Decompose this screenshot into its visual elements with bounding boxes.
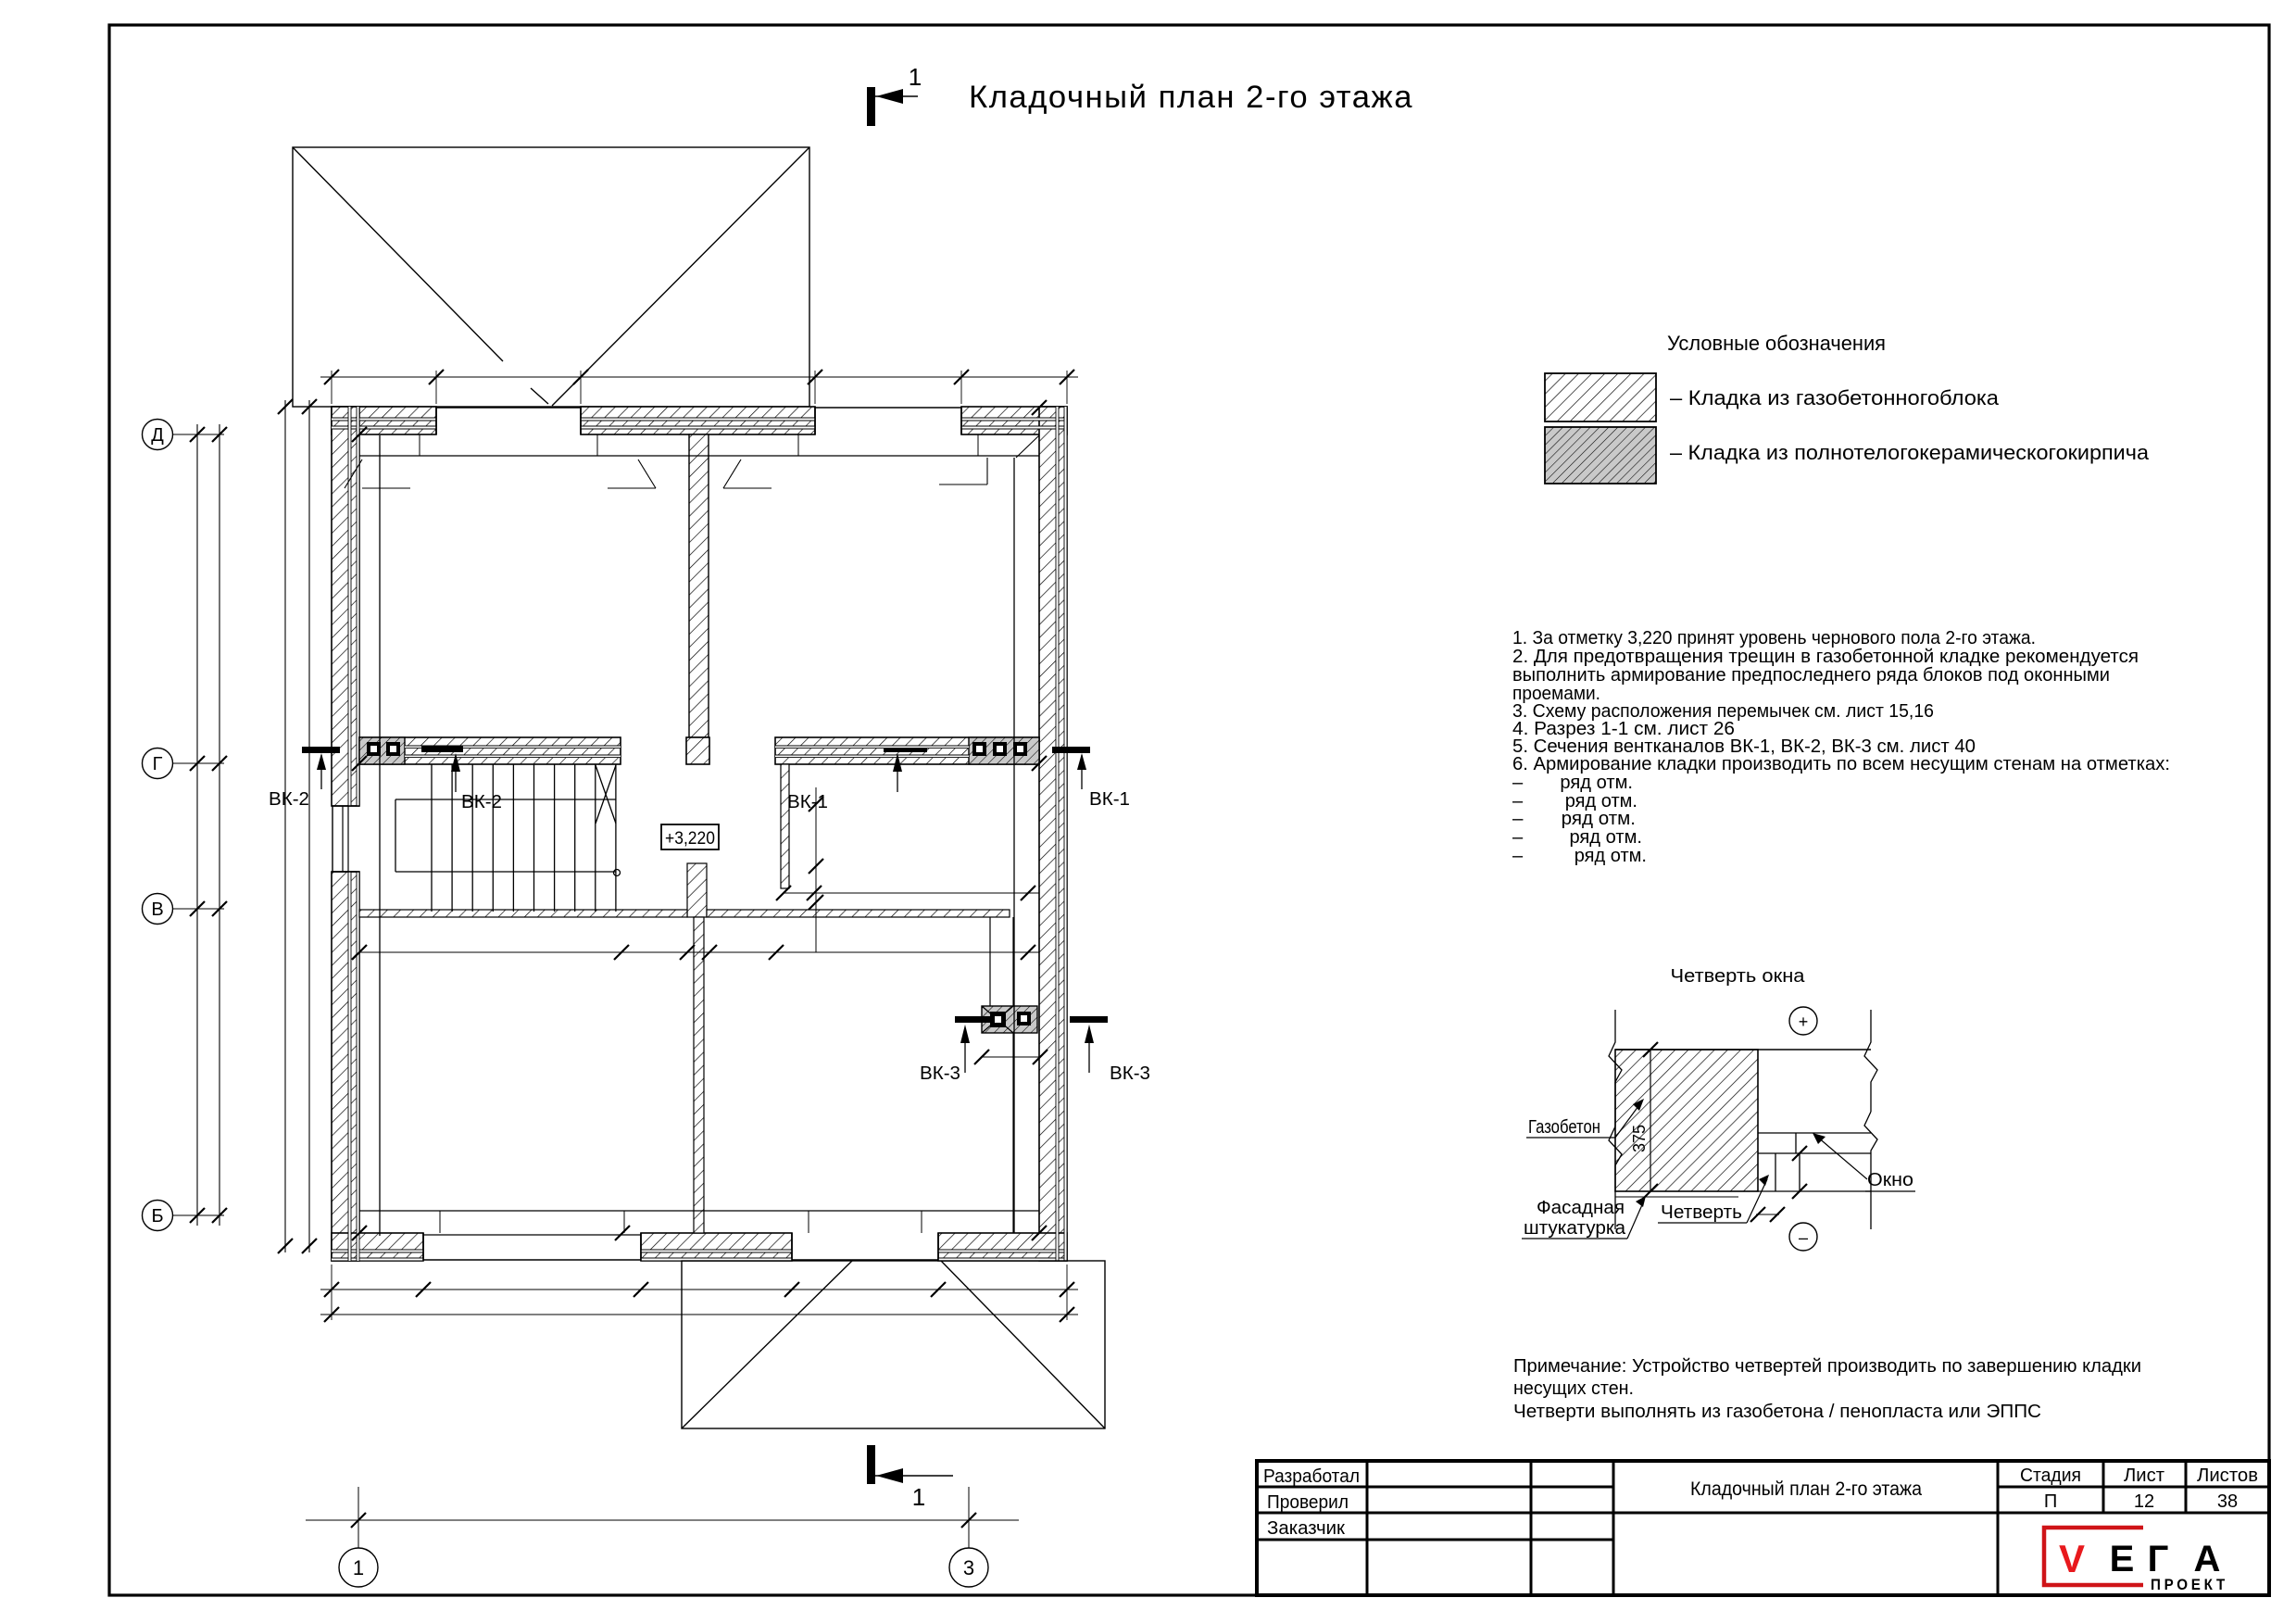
svg-text:Проверил: Проверил [1267, 1492, 1349, 1513]
svg-text:В: В [151, 900, 163, 920]
svg-text:Газобетон: Газобетон [1528, 1117, 1600, 1138]
svg-text:Кладочный план 2-го этажа: Кладочный план 2-го этажа [969, 80, 1413, 115]
svg-text:выполнить армирование предпосл: выполнить армирование предпоследнего ряд… [1512, 665, 2110, 686]
svg-text:– ряд отм.: – ряд отм. [1512, 827, 1642, 848]
svg-text:– ряд отм.: – ряд отм. [1512, 809, 1636, 829]
svg-text:А: А [2194, 1539, 2221, 1579]
svg-text:6. Армирование кладки производ: 6. Армирование кладки производить по все… [1512, 754, 2170, 774]
svg-text:– Кладка из полнотелогокерами: – Кладка из полнотелогокерамическогокирп… [1670, 441, 2150, 464]
svg-text:Г: Г [2148, 1539, 2169, 1579]
svg-text:– ряд отм.: – ряд отм. [1512, 846, 1647, 866]
svg-text:Фасадная: Фасадная [1537, 1198, 1625, 1218]
svg-text:– Кладка из газобетонногоблок: – Кладка из газобетонногоблока [1670, 386, 2000, 409]
svg-text:П: П [2044, 1491, 2057, 1512]
svg-text:12: 12 [2134, 1491, 2154, 1512]
svg-text:+3,220: +3,220 [665, 829, 715, 849]
svg-text:–: – [1799, 1228, 1808, 1247]
svg-text:Г: Г [153, 754, 163, 774]
svg-text:375: 375 [1630, 1125, 1649, 1152]
svg-text:Кладочный план 2-го этажа: Кладочный план 2-го этажа [1690, 1478, 1922, 1500]
svg-text:Примечание: Устройство четверт: Примечание: Устройство четвертей произво… [1513, 1356, 2141, 1377]
svg-text:Четверть: Четверть [1661, 1202, 1742, 1223]
svg-text:1: 1 [353, 1556, 364, 1579]
svg-text:ВК-1: ВК-1 [1089, 789, 1130, 810]
svg-text:Окно: Окно [1867, 1170, 1913, 1190]
svg-text:ПРОЕКТ: ПРОЕКТ [2151, 1576, 2228, 1593]
svg-text:Стадия: Стадия [2020, 1466, 2081, 1486]
svg-text:1: 1 [909, 63, 922, 91]
svg-text:ВК-2: ВК-2 [461, 792, 502, 812]
svg-text:штукатурка: штукатурка [1524, 1218, 1626, 1239]
svg-text:+: + [1799, 1013, 1809, 1031]
svg-text:Е: Е [2110, 1539, 2135, 1579]
svg-text:Разработал: Разработал [1263, 1466, 1360, 1487]
svg-text:3: 3 [963, 1556, 974, 1579]
svg-text:1: 1 [912, 1483, 925, 1511]
svg-text:Четверти выполнять из газобето: Четверти выполнять из газобетона / пеноп… [1513, 1402, 2041, 1422]
svg-text:V: V [2059, 1537, 2085, 1580]
svg-text:Условные обозначения: Условные обозначения [1667, 332, 1886, 355]
svg-text:Четверть окна: Четверть окна [1671, 966, 1806, 987]
svg-text:Лист: Лист [2124, 1466, 2164, 1486]
svg-text:ВК-3: ВК-3 [920, 1063, 960, 1084]
svg-text:несущих стен.: несущих стен. [1513, 1378, 1634, 1399]
svg-text:ВК-3: ВК-3 [1110, 1063, 1150, 1084]
svg-text:38: 38 [2217, 1491, 2238, 1512]
svg-text:Б: Б [151, 1206, 163, 1227]
svg-text:2. Для предотвращения трещин в: 2. Для предотвращения трещин в газобетон… [1512, 647, 2139, 667]
svg-text:Заказчик: Заказчик [1267, 1518, 1345, 1539]
svg-text:Д: Д [151, 425, 164, 446]
svg-text:1. За отметку 3,220 принят уро: 1. За отметку 3,220 принят уровень черно… [1512, 628, 2036, 648]
svg-text:Листов: Листов [2197, 1466, 2258, 1486]
svg-text:ВК-1: ВК-1 [787, 792, 828, 812]
svg-text:ВК-2: ВК-2 [269, 789, 309, 810]
svg-text:– ряд отм.: – ряд отм. [1512, 773, 1633, 793]
